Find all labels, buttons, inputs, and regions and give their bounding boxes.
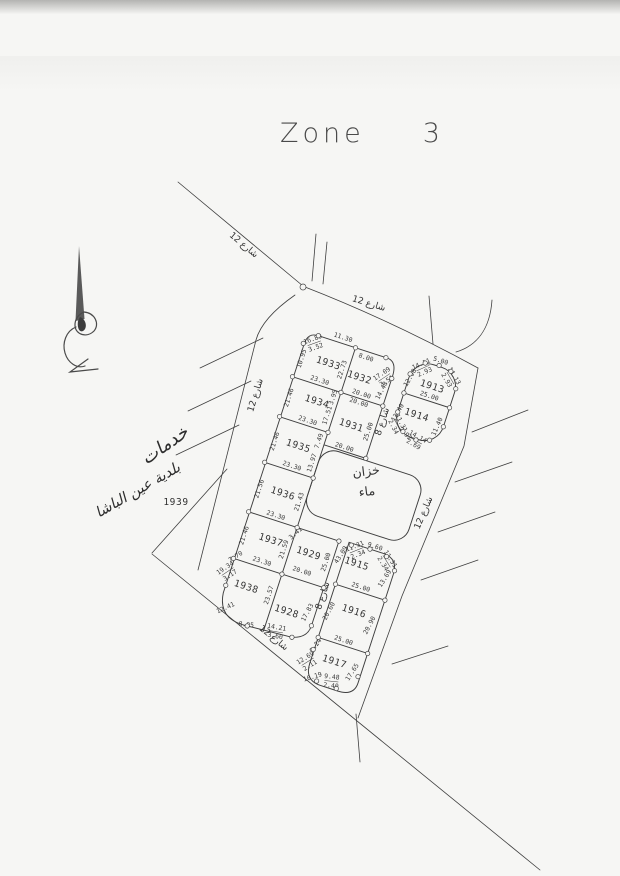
survey-point [310,475,316,481]
dim-label: 12.08 [402,367,419,388]
road-south-street-12 [152,554,540,870]
street-label: شارع 12 [351,294,387,314]
plot-label: 1938 [232,578,259,596]
plot-label: 1916 [340,603,367,621]
plot-label: 1936 [269,485,296,503]
survey-point [336,538,342,544]
survey-point [453,386,459,392]
north-symbol [64,246,98,372]
boundary-tick-east-5 [392,646,448,664]
handwritten-note: بلدية عين الباشا [93,460,184,522]
survey-point [447,405,453,411]
dim-label: 20.00 [334,440,355,454]
dim-label: 12.692.11 [295,649,320,674]
survey-point [365,651,371,657]
survey-point [382,597,388,603]
dim-label: 14.48 [374,380,390,401]
north-curve [64,327,85,367]
plot-label: 1939 [163,497,188,508]
dim-label: 13.69 [376,568,393,589]
survey-point [353,345,359,351]
water-tank-label: خزان [352,462,381,481]
plot-label: 1914 [403,406,430,424]
north-ink-blob [78,317,86,331]
site-plan-drawing: 1933193219341935193119361937192919381928… [0,0,620,876]
road-corner-northeast [456,300,492,352]
plot-label: 1917 [321,653,348,671]
scanned-site-plan: Zone 3 [0,0,620,876]
plot-label: 1935 [285,437,312,455]
road-top-street-12 [305,287,478,368]
survey-point [289,635,295,641]
road-junction-node [300,284,306,290]
dim-label: 21.46 [237,525,251,546]
dim-label: 23.57 [262,585,276,606]
water-tank-label: ماء [358,483,376,500]
boundary-tick-east-2 [455,462,512,482]
dim-label: 11.30 [333,331,354,345]
dim-label: 20.00 [291,564,312,578]
north-needle [76,246,85,321]
survey-point [338,390,344,396]
road-nw-street-12 [178,182,303,286]
survey-point [401,390,407,396]
dim-label: 10.95 [295,348,309,369]
plot-label: 1928 [273,603,300,621]
road-stub-a [312,234,316,281]
dim-label: 21.56 [252,478,266,499]
plot-label: 1931 [337,417,364,435]
survey-point [333,581,339,587]
dim-label: 23.30 [252,555,273,569]
road-stub-b [323,242,327,284]
survey-point [309,623,315,629]
dim-label: 13.97 [305,452,319,473]
dim-label: 21.46 [268,431,282,452]
survey-point [325,430,331,436]
street-label: شارع 12 [413,495,436,531]
road-stub-south [356,714,360,762]
survey-point [223,583,229,589]
boundary-tick-east-4 [421,560,478,580]
boundary-tick-east-1 [472,410,528,432]
survey-point [279,571,285,577]
handwritten-note: خدمات [137,421,193,469]
plot-label: 1932 [346,369,373,387]
plot-label: 1929 [295,545,322,563]
boundary-tick-northeast [429,296,433,344]
survey-point [383,355,389,361]
street-label: شارع 12 [246,378,266,414]
dim-label: 21.46 [282,387,296,408]
boundary-tick-east-3 [438,512,495,532]
boundary-tick-west-1 [200,338,263,368]
